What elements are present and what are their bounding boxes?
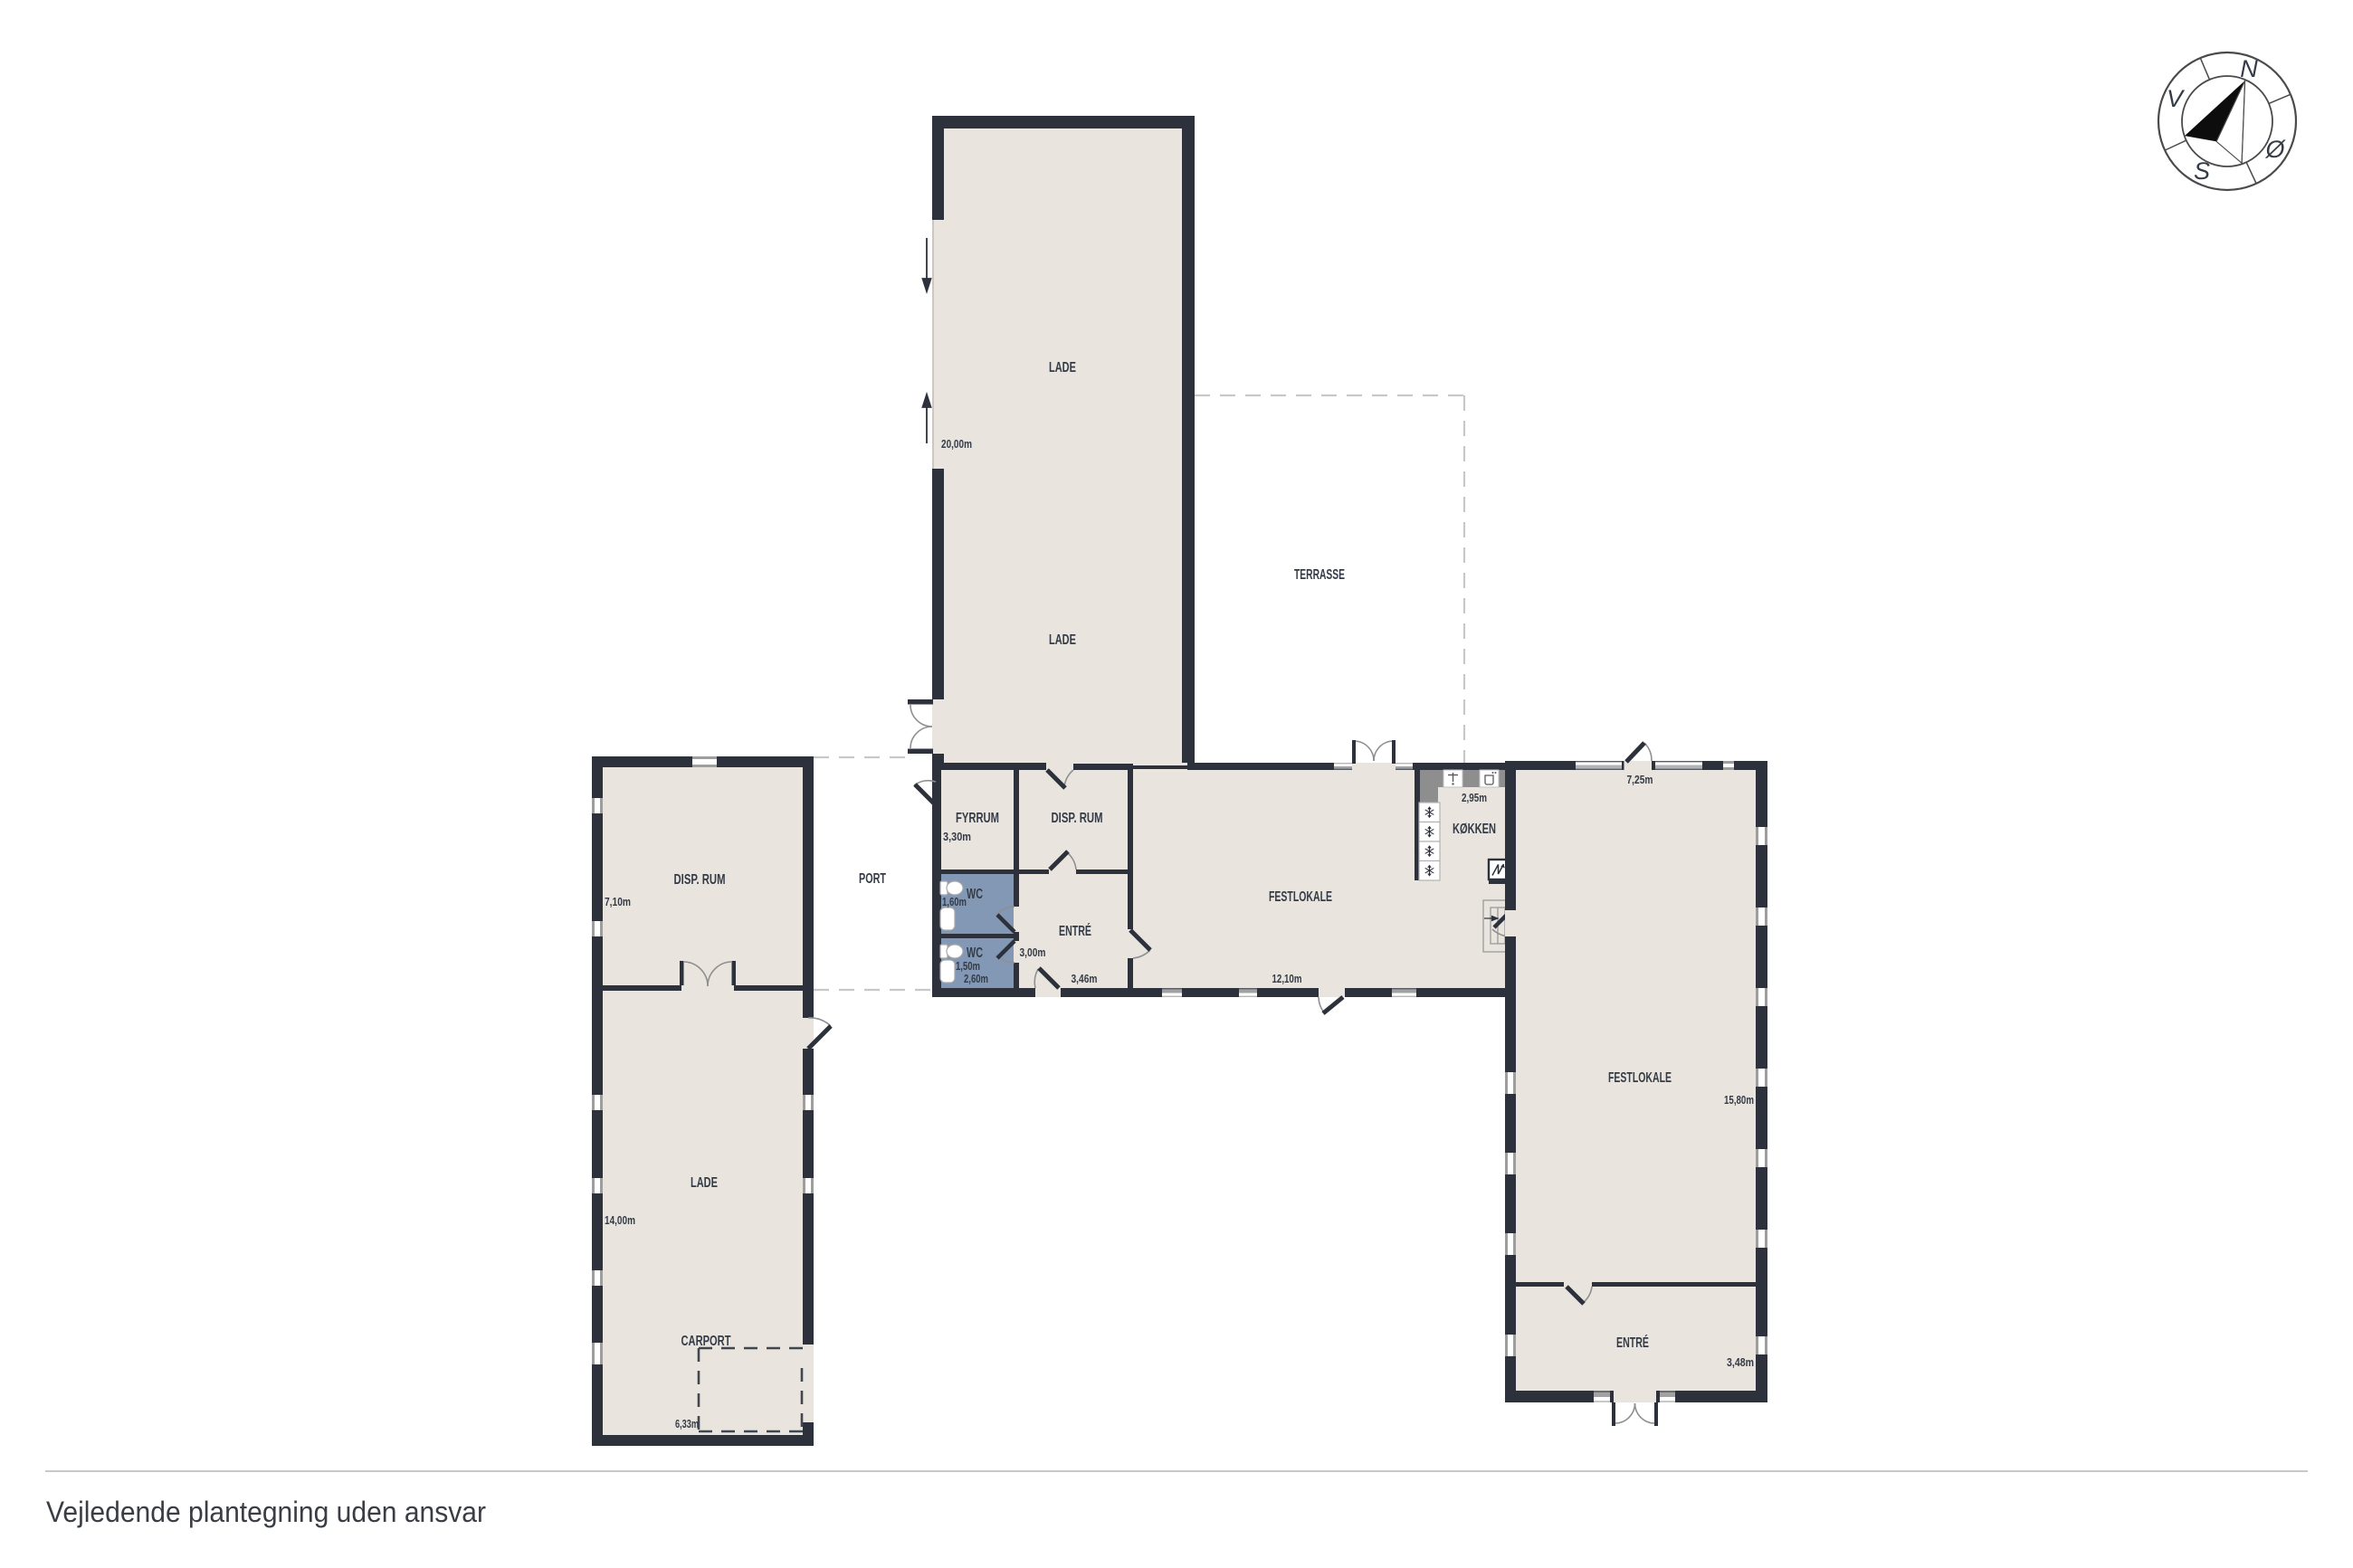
svg-text:14,00m: 14,00m — [605, 1214, 635, 1227]
svg-text:12,10m: 12,10m — [1272, 973, 1302, 985]
svg-text:CARPORT: CARPORT — [681, 1334, 731, 1349]
svg-text:3,00m: 3,00m — [1020, 946, 1046, 959]
svg-text:DISP. RUM: DISP. RUM — [674, 872, 726, 888]
svg-text:V: V — [2167, 85, 2186, 112]
svg-text:S: S — [2194, 157, 2210, 185]
svg-text:FESTLOKALE: FESTLOKALE — [1269, 889, 1332, 905]
svg-text:ENTRÉ: ENTRÉ — [1616, 1335, 1649, 1351]
svg-text:1,50m: 1,50m — [956, 960, 980, 973]
svg-text:2,95m: 2,95m — [1462, 792, 1487, 804]
svg-text:20,00m: 20,00m — [941, 438, 972, 451]
svg-text:LADE: LADE — [1049, 632, 1076, 648]
svg-text:FESTLOKALE: FESTLOKALE — [1608, 1070, 1672, 1086]
svg-text:FYRRUM: FYRRUM — [956, 811, 999, 826]
svg-text:LADE: LADE — [1049, 360, 1076, 375]
svg-text:7,25m: 7,25m — [1627, 774, 1653, 786]
svg-text:WC: WC — [967, 946, 983, 961]
svg-text:3,46m: 3,46m — [1072, 973, 1098, 985]
svg-text:WC: WC — [967, 887, 983, 902]
svg-text:7,10m: 7,10m — [605, 896, 631, 908]
svg-text:Vejledende plantegning uden an: Vejledende plantegning uden ansvar — [46, 1496, 486, 1528]
svg-text:TERRASSE: TERRASSE — [1294, 567, 1345, 583]
svg-text:DISP. RUM: DISP. RUM — [1052, 811, 1103, 826]
svg-text:PORT: PORT — [859, 871, 886, 887]
svg-text:N: N — [2240, 55, 2258, 82]
svg-text:15,80m: 15,80m — [1724, 1094, 1754, 1107]
svg-text:ENTRÉ: ENTRÉ — [1059, 924, 1091, 939]
svg-text:6,33m: 6,33m — [675, 1418, 699, 1430]
svg-text:1,60m: 1,60m — [942, 896, 967, 908]
svg-text:LADE: LADE — [691, 1175, 718, 1191]
svg-text:Ø: Ø — [2264, 136, 2286, 163]
svg-text:3,48m: 3,48m — [1727, 1356, 1754, 1369]
svg-text:KØKKEN: KØKKEN — [1453, 822, 1496, 837]
svg-text:3,30m: 3,30m — [943, 831, 971, 843]
svg-text:2,60m: 2,60m — [964, 973, 988, 985]
